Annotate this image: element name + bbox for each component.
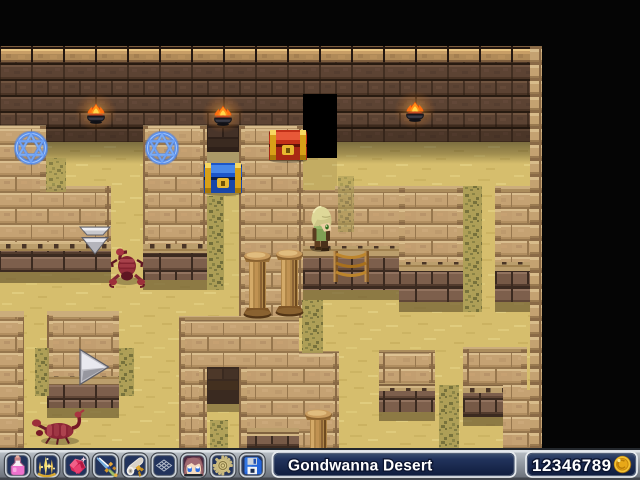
- svg-text:12346789: 12346789: [532, 456, 612, 475]
- svg-text:Gondwanna Desert: Gondwanna Desert: [288, 458, 432, 475]
